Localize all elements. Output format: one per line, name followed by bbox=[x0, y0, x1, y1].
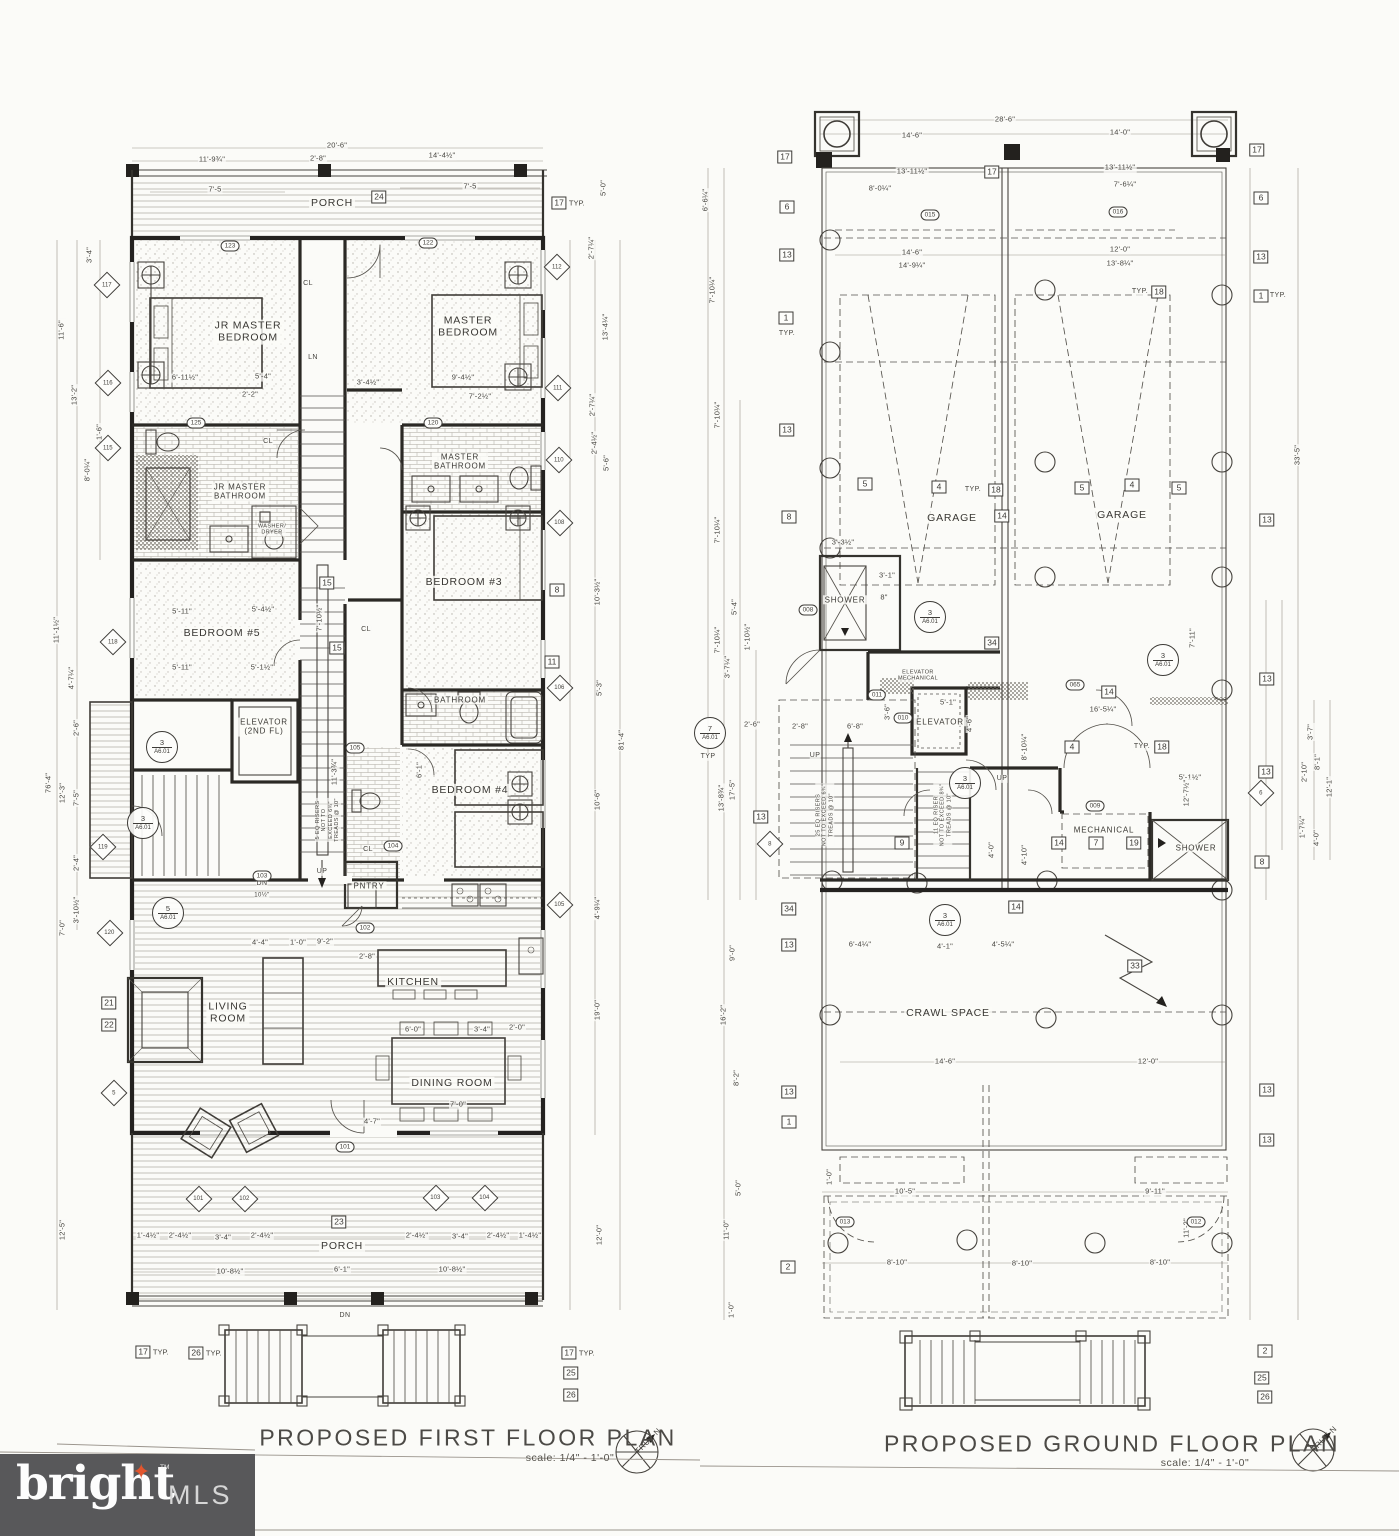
dimension-label: 5'-11" bbox=[171, 664, 193, 673]
dimension-label: 9'-2" bbox=[316, 938, 334, 947]
keynote-box: 13 bbox=[781, 1086, 798, 1099]
dimension-label: 6'-6¼" bbox=[702, 188, 711, 212]
dimension-label: 12'-1" bbox=[1326, 776, 1335, 798]
door-tag-oval: 011 bbox=[868, 690, 886, 701]
dimension-label: 12'-0" bbox=[1137, 1058, 1159, 1067]
room-label: PORCH bbox=[309, 197, 355, 209]
dimension-label: 7'-5 bbox=[462, 183, 477, 192]
keynote-box: 13 bbox=[753, 811, 770, 824]
dimension-label: 2'-8" bbox=[358, 953, 376, 962]
dimension-label: 7'-10¼" bbox=[714, 626, 723, 655]
keynote-box: 1 bbox=[779, 312, 796, 325]
keynote-box: 1 bbox=[782, 1116, 799, 1129]
dimension-label: 3'-4" bbox=[86, 246, 95, 264]
dimension-label: 7'-2½" bbox=[468, 393, 492, 402]
dimension-label: 4'-6" bbox=[966, 715, 975, 733]
keynote-box: 1 bbox=[1254, 290, 1271, 303]
first-floor-title: PROPOSED FIRST FLOOR PLAN bbox=[259, 1425, 676, 1452]
detail-callout-circle: 3A6.01 bbox=[929, 904, 961, 936]
detail-callout-circle: 5A6.01 bbox=[152, 897, 184, 929]
door-tag-oval: 103 bbox=[253, 871, 272, 882]
door-tag-oval: 122 bbox=[419, 238, 438, 249]
dimension-label: 5'-4" bbox=[254, 373, 272, 382]
note-label: UP bbox=[810, 752, 821, 760]
keynote-box: 13 bbox=[779, 424, 796, 437]
note-label: DN bbox=[340, 1312, 351, 1320]
room-label: LIVING ROOM bbox=[206, 1001, 249, 1026]
dimension-label: 8'-10" bbox=[886, 1259, 908, 1268]
dimension-label: 9'-11" bbox=[1144, 1188, 1166, 1197]
keynote-box: 18 bbox=[988, 484, 1005, 497]
note-label: CL bbox=[361, 626, 371, 634]
room-label: BATHROOM bbox=[432, 695, 488, 704]
dimension-label: 13'-11½" bbox=[1104, 164, 1137, 173]
dimension-label: 14'-6" bbox=[901, 249, 923, 258]
detail-callout-circle: 7A6.01 bbox=[694, 717, 726, 749]
ground-floor-title: PROPOSED GROUND FLOOR PLAN bbox=[884, 1431, 1340, 1458]
note-label: TYP bbox=[701, 753, 716, 761]
room-label: MECHANICAL bbox=[1072, 825, 1136, 834]
keynote-box: 26 bbox=[563, 1389, 580, 1402]
dimension-label: 6'-1" bbox=[333, 1266, 351, 1275]
dimension-label: 16'-5¼" bbox=[1089, 706, 1118, 715]
dimension-label: 3'-4" bbox=[451, 1233, 469, 1242]
dimension-label: 9'-4½" bbox=[451, 374, 475, 383]
dimension-label: 13'-2" bbox=[71, 384, 80, 406]
room-label: CRAWL SPACE bbox=[904, 1007, 992, 1019]
keynote-box: 18 bbox=[1151, 286, 1168, 299]
dimension-label: 28'-6" bbox=[994, 116, 1016, 125]
room-label: MASTER BEDROOM bbox=[436, 315, 500, 340]
room-label: GARAGE bbox=[1095, 509, 1149, 521]
dimension-label: 1'-4½" bbox=[136, 1232, 160, 1241]
door-tag-oval: 065 bbox=[1066, 680, 1085, 691]
dimension-label: 14'-0" bbox=[1109, 129, 1131, 138]
note-label: 25 EQ RISERS NOT TO EXCEED 6¾" TREADS @ … bbox=[815, 784, 834, 847]
keynote-box: 17 bbox=[777, 151, 794, 164]
keynote-box: 15 bbox=[329, 642, 346, 655]
dimension-label: 6'-8" bbox=[846, 723, 864, 732]
dimension-label: 11'-1½" bbox=[53, 616, 62, 644]
dimension-label: 8'-10¼" bbox=[1021, 733, 1030, 762]
dimension-label: 7'-0" bbox=[59, 919, 68, 937]
dimension-label: 3'-4" bbox=[473, 1026, 491, 1035]
dimension-label: 4'-9¼" bbox=[594, 896, 603, 920]
note-label: TYP. bbox=[779, 330, 795, 338]
room-label: GARAGE bbox=[925, 512, 979, 524]
dimension-label: 3'-7" bbox=[1307, 723, 1316, 741]
door-tag-oval: 012 bbox=[1187, 1217, 1206, 1228]
dimension-label: 5'-4" bbox=[731, 598, 740, 616]
dimension-label: 3'-3½" bbox=[831, 539, 855, 548]
dimension-label: 9'-0" bbox=[729, 944, 738, 962]
dimension-label: 1'-0" bbox=[289, 939, 307, 948]
dimension-label: 7'-11" bbox=[1189, 627, 1198, 649]
dimension-label: 2'-7¼" bbox=[588, 236, 597, 260]
floor-plan-sheet: PORCHJR MASTER BEDROOMMASTER BEDROOMMAST… bbox=[0, 0, 1399, 1536]
dimension-label: 8'-10" bbox=[1149, 1259, 1171, 1268]
dimension-label: 2'-2" bbox=[241, 391, 259, 400]
dimension-label: 14'-4½" bbox=[428, 152, 457, 161]
door-tag-oval: 125 bbox=[187, 418, 206, 429]
dimension-label: 10'-6" bbox=[594, 789, 603, 811]
room-label: PORCH bbox=[319, 1240, 365, 1252]
dimension-label: 10'-3½" bbox=[594, 578, 603, 607]
room-label: BEDROOM #4 bbox=[430, 784, 511, 796]
dimension-label: 76'-4" bbox=[45, 772, 54, 794]
detail-callout-circle: 3A6.01 bbox=[914, 601, 946, 633]
dimension-label: 2'-4" bbox=[73, 854, 82, 872]
door-tag-oval: 010 bbox=[894, 713, 913, 724]
dimension-label: 13'-8¾" bbox=[718, 784, 727, 813]
garage-door-swings bbox=[840, 295, 1170, 585]
keynote-box: 13 bbox=[1259, 1134, 1276, 1147]
door-tag-oval: 101 bbox=[336, 1142, 355, 1153]
keynote-box: 4 bbox=[932, 481, 949, 494]
keynote-box: 6 bbox=[1254, 192, 1271, 205]
dimension-label: 1'-7¼" bbox=[1299, 815, 1308, 839]
keynote-box: 13 bbox=[1259, 673, 1276, 686]
dimension-label: 2'-8" bbox=[791, 723, 809, 732]
dimension-label: 5'-6" bbox=[603, 454, 612, 472]
keynote-box: 13 bbox=[1253, 251, 1270, 264]
note-label: CL bbox=[263, 438, 273, 446]
dimension-label: 8'-0¼" bbox=[868, 185, 892, 194]
dimension-label: 7'-10¼" bbox=[709, 276, 718, 305]
dimension-label: 5'-1½" bbox=[250, 664, 274, 673]
dimension-label: 14'-6" bbox=[934, 1058, 956, 1067]
room-label: MASTER BATHROOM bbox=[432, 453, 488, 472]
note-label: UP bbox=[317, 868, 328, 876]
keynote-box: 22 bbox=[101, 1019, 118, 1032]
note-label: CL bbox=[303, 280, 313, 288]
dimension-label: 10'-8½" bbox=[216, 1268, 245, 1277]
dimension-label: 33'-5" bbox=[1294, 444, 1303, 466]
dimension-label: 7'-5 bbox=[207, 186, 222, 195]
detail-callout-circle: 3A6.01 bbox=[949, 767, 981, 799]
door-tag-oval: 013 bbox=[836, 1217, 855, 1228]
keynote-box: 11 bbox=[545, 656, 562, 669]
note-label: TYP. bbox=[1132, 288, 1148, 296]
dimension-label: 3'-10½" bbox=[73, 896, 82, 925]
keynote-box: 13 bbox=[1259, 1084, 1276, 1097]
keynote-box: 17 bbox=[984, 166, 1001, 179]
dimension-label: 13'-11½" bbox=[896, 168, 929, 177]
keynote-box: 14 bbox=[1051, 837, 1068, 850]
keynote-box: 5 bbox=[858, 478, 875, 491]
dimension-label: 2'-4½" bbox=[250, 1232, 274, 1241]
door-tag-oval: 008 bbox=[799, 605, 818, 616]
dimension-label: 11'-0" bbox=[723, 1219, 732, 1241]
dimension-label: 6'-0" bbox=[404, 1026, 422, 1035]
room-label: SHOWER bbox=[1174, 843, 1219, 852]
room-label: BEDROOM #5 bbox=[182, 627, 263, 639]
dimension-label: 3'-7¼" bbox=[724, 655, 733, 679]
keynote-box: 18 bbox=[1154, 741, 1171, 754]
note-label: ELEVATOR MECHANICAL bbox=[898, 670, 938, 683]
dimension-label: 13'-4¼" bbox=[602, 313, 611, 342]
room-label: SHOWER bbox=[823, 595, 868, 604]
logo-brand-text: bright bbox=[16, 1456, 174, 1511]
dimension-label: 12'-3" bbox=[59, 782, 68, 804]
keynote-box: 7 bbox=[1089, 837, 1106, 850]
dimension-label: 5'-0" bbox=[600, 179, 609, 197]
bright-mls-logo: bright ✦ TM MLS bbox=[0, 1454, 255, 1536]
dimension-label: 8'-1" bbox=[1314, 753, 1323, 771]
detail-callout-circle: 3A6.01 bbox=[1147, 644, 1179, 676]
dimension-label: 12'-0" bbox=[1109, 246, 1131, 255]
keynote-box: 4 bbox=[1065, 741, 1082, 754]
dimension-label: 10'-5" bbox=[894, 1188, 916, 1197]
note-label: LN bbox=[308, 354, 318, 362]
plan-linework bbox=[0, 0, 1399, 1536]
keynote-box: 34 bbox=[984, 637, 1001, 650]
keynote-box: 17TYP. bbox=[561, 1347, 594, 1360]
dimension-label: 3'-4" bbox=[214, 1234, 232, 1243]
dimension-label: 5'-11" bbox=[171, 608, 193, 617]
keynote-box: 5 bbox=[1075, 482, 1092, 495]
dimension-label: 8'-2" bbox=[733, 1069, 742, 1087]
room-label: BEDROOM #3 bbox=[424, 576, 505, 588]
note-label: WASHER/ DRYER bbox=[258, 524, 286, 537]
dimension-label: 2'-4½" bbox=[405, 1232, 429, 1241]
keynote-box: 17 bbox=[1249, 144, 1266, 157]
dimension-label: 4'-10" bbox=[1021, 844, 1030, 866]
dimension-label: 11'-3¾" bbox=[331, 758, 340, 786]
keynote-box: 6 bbox=[780, 201, 797, 214]
keynote-box: 13 bbox=[779, 249, 796, 262]
door-tag-oval: 015 bbox=[921, 210, 940, 221]
detail-callout-circle: 3A6.01 bbox=[127, 807, 159, 839]
note-label: TYP. bbox=[1270, 292, 1286, 300]
dimension-label: 16'-2" bbox=[720, 1004, 729, 1026]
dimension-label: 3'-6" bbox=[884, 703, 893, 721]
dimension-label: 7'-10½" bbox=[316, 604, 325, 633]
room-label: ELEVATOR (2ND FL) bbox=[238, 718, 290, 737]
keynote-box: 13 bbox=[1259, 514, 1276, 527]
dimension-label: 14'-6" bbox=[901, 132, 923, 141]
dimension-label: 81'-4" bbox=[618, 729, 627, 751]
dimension-label: 5'-1" bbox=[939, 699, 957, 708]
door-tag-oval: 104 bbox=[384, 841, 403, 852]
dimension-label: 12'-0" bbox=[596, 1224, 605, 1246]
dimension-label: 11'-9¾" bbox=[198, 156, 226, 165]
dimension-label: 3'-1" bbox=[878, 572, 896, 581]
dimension-label: 7'-0" bbox=[449, 1101, 467, 1110]
dimension-label: 10'-8½" bbox=[438, 1266, 467, 1275]
dimension-label: 12'-5" bbox=[59, 1219, 68, 1241]
dimension-label: 8" bbox=[879, 594, 888, 603]
note-label: UP bbox=[997, 775, 1008, 783]
dimension-label: 2'-4½" bbox=[591, 431, 600, 455]
dimension-label: 12'-7½" bbox=[1183, 779, 1192, 808]
keynote-box: 17TYP. bbox=[135, 1346, 168, 1359]
keynote-box: 5 bbox=[1172, 482, 1189, 495]
note-label: TYP. bbox=[1134, 743, 1150, 751]
keynote-box: 13 bbox=[781, 939, 798, 952]
keynote-box: 26 bbox=[1257, 1391, 1274, 1404]
keynote-box: 13 bbox=[1258, 766, 1275, 779]
keynote-box: 17TYP. bbox=[551, 197, 584, 210]
door-tag-oval: 105 bbox=[346, 743, 365, 754]
dimension-label: 7'-5" bbox=[73, 789, 82, 807]
note-label: 11 EQ RISER NOT TO EXCEED 8¾" TREADS @ 1… bbox=[933, 784, 952, 847]
first-floor-scale: scale: 1/4" - 1'-0" bbox=[526, 1452, 614, 1464]
room-label: JR MASTER BATHROOM bbox=[212, 483, 269, 502]
room-label: ELEVATOR bbox=[914, 717, 966, 726]
keynote-box: 21 bbox=[101, 997, 118, 1010]
door-tag-oval: 016 bbox=[1109, 207, 1128, 218]
dimension-label: 1'-0" bbox=[728, 1301, 737, 1319]
note-label: 5 EQ RISERS NOT TO EXCEED 6¾" TREADS @ 1… bbox=[315, 798, 341, 842]
dimension-label: 2'-8" bbox=[309, 155, 327, 164]
room-label: DINING ROOM bbox=[409, 1077, 494, 1089]
dimension-label: 2'-6" bbox=[743, 721, 761, 730]
dimension-label: 7'-6¼" bbox=[1113, 181, 1137, 190]
dimension-label: 2'-4½" bbox=[168, 1232, 192, 1241]
keynote-box: 23 bbox=[331, 1216, 348, 1229]
dimension-label: 7'-10¼" bbox=[714, 401, 723, 430]
keynote-box: 2 bbox=[1258, 1345, 1275, 1358]
dimension-label: 8'-0¼" bbox=[84, 458, 93, 482]
dimension-label: 8'-10" bbox=[1011, 1260, 1033, 1269]
keynote-box: 2 bbox=[781, 1261, 798, 1274]
detail-callout-circle: 3A6.01 bbox=[146, 731, 178, 763]
dimension-label: 6'-11½" bbox=[171, 374, 199, 383]
keynote-box: 25 bbox=[563, 1367, 580, 1380]
dimension-label: 2'-0" bbox=[508, 1024, 526, 1033]
dimension-label: 5'-4½" bbox=[251, 606, 275, 615]
room-label: KITCHEN bbox=[385, 976, 441, 988]
keynote-box: 9 bbox=[895, 837, 912, 850]
dimension-label: 19'-0" bbox=[594, 999, 603, 1021]
logo-star-icon: ✦ bbox=[132, 1460, 150, 1485]
door-tag-oval: 120 bbox=[424, 418, 443, 429]
dimension-label: 4'-5¼" bbox=[991, 941, 1015, 950]
dimension-label: 1'-10½" bbox=[744, 623, 753, 652]
keynote-box: 14 bbox=[994, 510, 1011, 523]
dimension-label: 6'-1" bbox=[416, 761, 425, 779]
dimension-label: 2'-7¼" bbox=[589, 393, 598, 417]
keynote-box: 14 bbox=[1008, 901, 1025, 914]
room-label: PNTRY bbox=[352, 881, 387, 890]
note-label: 10½" bbox=[254, 892, 269, 899]
dimension-label: 17'-5" bbox=[729, 779, 738, 801]
dimension-label: 4'-0" bbox=[988, 841, 997, 859]
keynote-box: 34 bbox=[781, 903, 798, 916]
keynote-box: 4 bbox=[1125, 479, 1142, 492]
dimension-label: 4'-7¼" bbox=[68, 666, 77, 690]
dimension-label: 1'-0" bbox=[826, 1168, 835, 1186]
dimension-label: 2'-6" bbox=[73, 719, 82, 737]
room-label: JR MASTER BEDROOM bbox=[213, 320, 284, 345]
dimension-label: 7'-10¼" bbox=[714, 516, 723, 545]
dimension-label: 4'-4" bbox=[251, 939, 269, 948]
ground-floor-scale: scale: 1/4" - 1'-0" bbox=[1161, 1457, 1249, 1469]
door-tag-oval: 009 bbox=[1086, 801, 1105, 812]
dimension-label: 11'-6" bbox=[58, 319, 67, 341]
dimension-label: 5'-3" bbox=[596, 679, 605, 697]
dimension-label: 5'-0" bbox=[735, 1179, 744, 1197]
keynote-box: 33 bbox=[1127, 960, 1144, 973]
keynote-box: 8 bbox=[550, 584, 567, 597]
keynote-box: 8 bbox=[1255, 856, 1272, 869]
keynote-box: 26TYP. bbox=[188, 1347, 221, 1360]
keynote-box: 15 bbox=[319, 577, 336, 590]
dimension-label: 20'-6" bbox=[326, 142, 348, 151]
dimension-label: 2'-10" bbox=[1301, 761, 1310, 783]
keynote-box: 24 bbox=[371, 191, 388, 204]
dimension-label: 13'-8¼" bbox=[1106, 260, 1135, 269]
keynote-box: 19 bbox=[1126, 837, 1143, 850]
logo-mls-text: MLS bbox=[168, 1480, 233, 1511]
dimension-label: 1'-4½" bbox=[518, 1232, 542, 1241]
note-label: CL bbox=[363, 846, 373, 854]
dimension-label: 4'-7" bbox=[363, 1118, 381, 1127]
door-tag-oval: 102 bbox=[356, 923, 375, 934]
dimension-label: 4'-0" bbox=[1313, 829, 1322, 847]
keynote-box: 25 bbox=[1254, 1372, 1271, 1385]
keynote-box: 8 bbox=[782, 511, 799, 524]
dimension-label: 3'-4½" bbox=[356, 379, 380, 388]
dimension-label: 14'-9¼" bbox=[898, 262, 927, 271]
keynote-box: 14 bbox=[1101, 686, 1118, 699]
note-label: TYP. bbox=[965, 486, 981, 494]
logo-trademark: TM bbox=[160, 1464, 169, 1471]
dimension-label: 6'-4¼" bbox=[848, 941, 872, 950]
door-tag-oval: 123 bbox=[221, 241, 240, 252]
dimension-label: 2'-4½" bbox=[486, 1232, 510, 1241]
dimension-label: 4'-1" bbox=[936, 943, 954, 952]
